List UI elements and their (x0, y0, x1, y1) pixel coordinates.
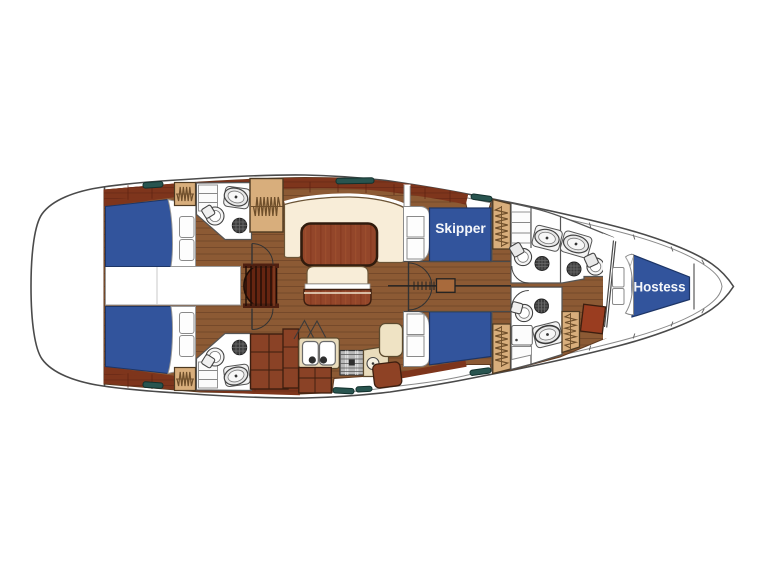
svg-text:Hostess: Hostess (633, 280, 685, 295)
svg-text:Skipper: Skipper (435, 221, 486, 236)
